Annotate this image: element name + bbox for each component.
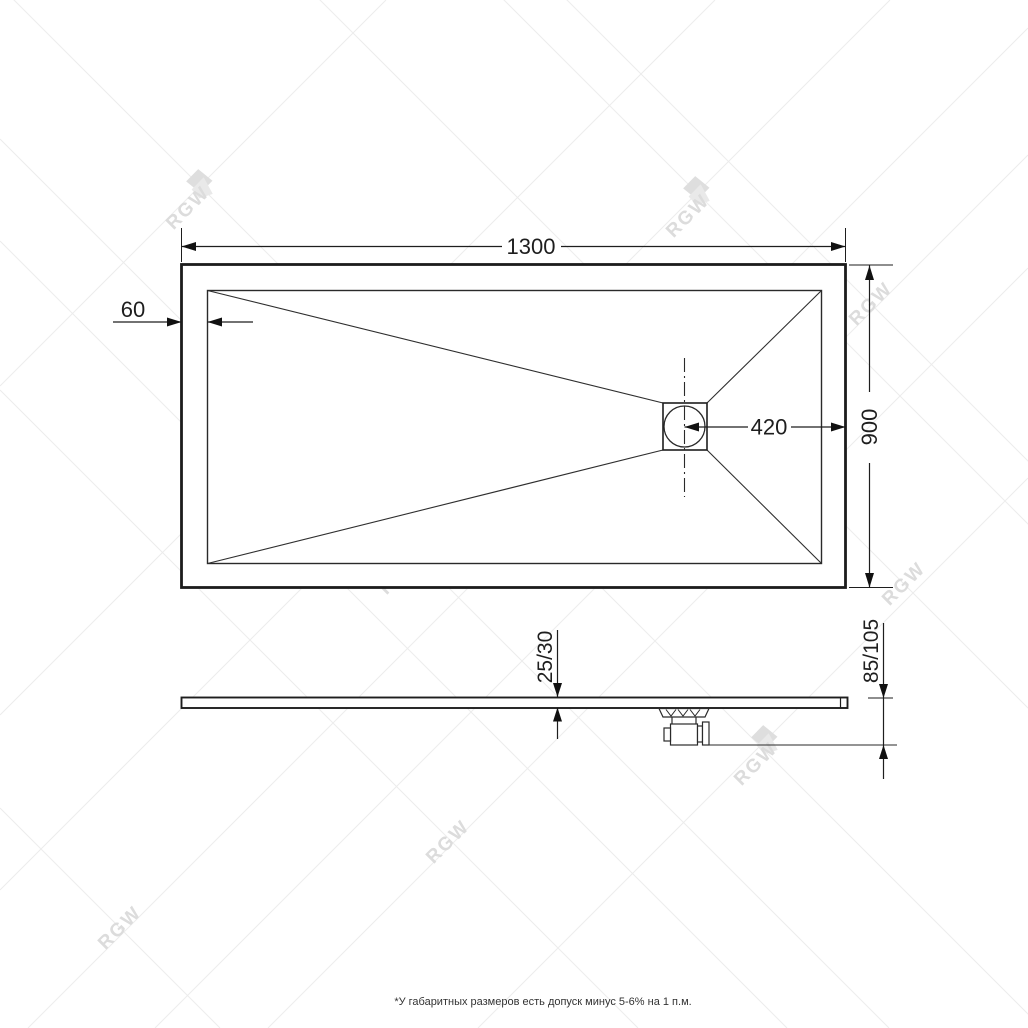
dimension-width-label: 1300 (507, 234, 556, 259)
dimension-overall-label: 85/105 (860, 619, 883, 683)
dimension-width-1300: 1300 (182, 228, 846, 262)
trap-outlet (703, 722, 710, 745)
drain-trap (659, 709, 709, 746)
arrowhead-up (865, 266, 874, 281)
arrowhead-up (553, 708, 562, 722)
watermark-text: RGW (730, 738, 782, 790)
dimension-thickness-label: 25/30 (534, 631, 557, 684)
watermark-text: RGW (162, 182, 214, 234)
arrowhead-up (879, 745, 888, 759)
watermark-text: RGW (422, 816, 474, 868)
shower-tray-dimension-drawing: RGW RGW RGW RGW RGW RGW RGW RGW RGW (0, 0, 1028, 1028)
tolerance-footnote: *У габаритных размеров есть допуск минус… (394, 996, 691, 1008)
arrowhead-down (865, 573, 874, 588)
trap-left-tab (664, 728, 671, 741)
drawing-svg: RGW RGW RGW RGW RGW RGW RGW RGW RGW (0, 0, 1028, 1028)
watermark-text: RGW (662, 190, 714, 242)
dimension-drain-label: 420 (751, 415, 788, 440)
top-view (182, 265, 846, 588)
side-view (182, 698, 898, 746)
arrowhead-left (182, 242, 197, 251)
arrowhead-down (879, 684, 888, 698)
dimension-height-label: 900 (857, 409, 882, 446)
trap-right-tab (698, 726, 703, 742)
arrowhead-down (553, 683, 562, 697)
tray-side-profile (182, 698, 848, 709)
dimension-rim-label: 60 (121, 297, 145, 322)
dimension-thickness-2530: 25/30 (534, 630, 562, 739)
arrowhead-right (831, 242, 846, 251)
dimension-overall-85105: 85/105 (860, 619, 893, 779)
tray-outer-outline (182, 265, 846, 588)
trap-body (671, 724, 698, 745)
